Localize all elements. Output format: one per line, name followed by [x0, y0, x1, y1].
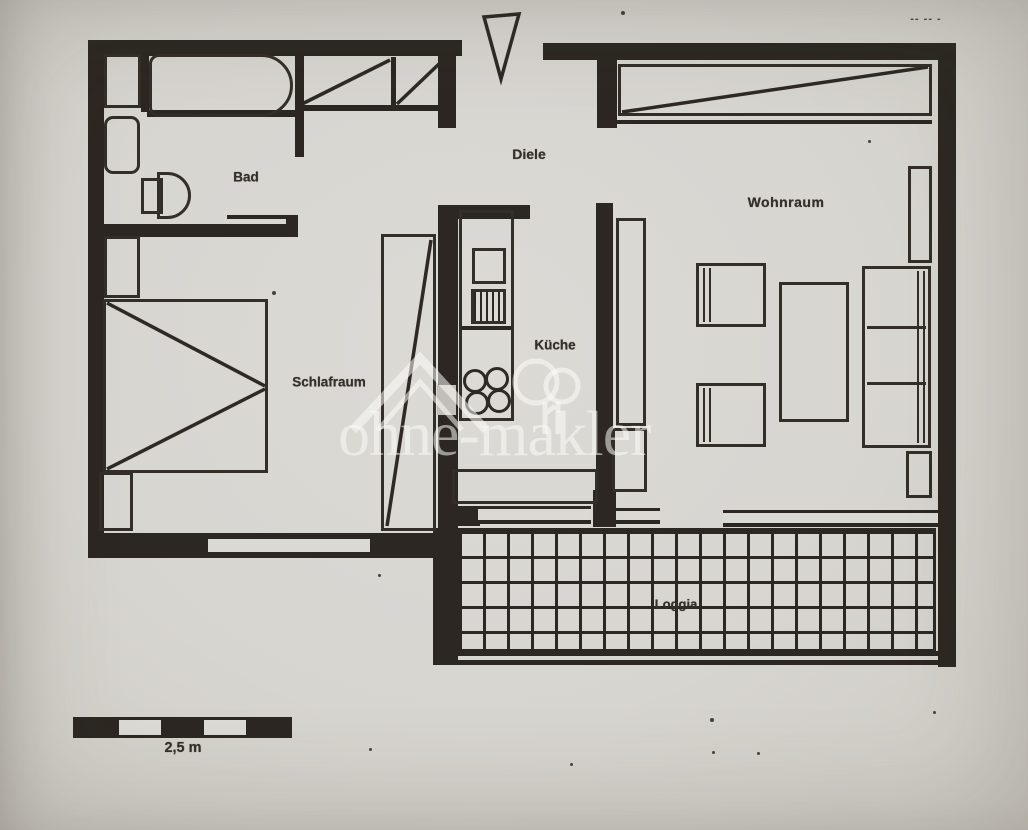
scale-label: 2,5 m — [164, 740, 201, 756]
room-label-diele: Diele — [512, 146, 545, 162]
scan-speck — [272, 291, 276, 295]
loggia-tile-grid — [456, 528, 936, 652]
armchair-2 — [696, 383, 766, 447]
cabinet-upper — [616, 218, 646, 426]
armchair-1 — [696, 263, 766, 327]
room-label-schlafraum: Schlafraum — [292, 375, 366, 390]
sofa-backrest-line — [917, 271, 919, 443]
armchair-armrest-line — [709, 388, 711, 442]
bedroom-wardrobe — [381, 234, 436, 531]
armchair-armrest-line — [703, 388, 705, 442]
scale-segment — [204, 720, 247, 735]
window-mid-loggia — [616, 508, 660, 524]
scan-speck — [369, 748, 372, 751]
scale-segment — [76, 720, 119, 735]
coffee-table — [779, 282, 849, 422]
toilet-bowl — [157, 172, 191, 219]
scan-speck — [757, 752, 760, 755]
scale-segment — [119, 720, 162, 735]
scan-speck — [378, 574, 381, 577]
window-living-loggia — [723, 510, 938, 527]
window-bedroom — [208, 536, 370, 555]
kitchen-counter — [452, 469, 598, 504]
scan-speck — [710, 718, 714, 722]
wall-kitchen-right — [596, 203, 613, 493]
room-label-bad: Bad — [233, 170, 259, 185]
hall-wardrobe-diagonal — [302, 60, 390, 104]
kitchen-gray-patch — [437, 385, 456, 415]
armchair-armrest-line — [709, 268, 711, 322]
washbasin — [104, 116, 140, 174]
scan-speck — [868, 140, 871, 143]
scale-bar — [73, 717, 292, 738]
entrance-arrow-icon — [484, 14, 519, 79]
room-label-kueche: Küche — [534, 338, 575, 353]
scan-speck — [712, 751, 715, 754]
sofa-backrest-line — [923, 271, 925, 443]
floorplan-photo: Bad Diele Wohnraum Schlafraum Küche Logg… — [0, 0, 1028, 830]
wall-shelf — [908, 166, 932, 263]
scale-segment — [161, 720, 204, 735]
room-label-loggia: Loggia — [655, 597, 698, 612]
wall-hall-living-stub — [597, 60, 617, 128]
shower-tray — [104, 54, 141, 108]
wall-bath-right — [295, 40, 304, 157]
handwritten-marks: -- -- - — [910, 13, 941, 25]
bathtub — [149, 54, 293, 117]
living-wardrobe-baseline — [608, 120, 932, 124]
kitchen-drainer — [471, 289, 506, 324]
bath-door-leaf — [227, 215, 289, 219]
loggia-railing — [456, 651, 938, 665]
cabinet-lower — [612, 428, 647, 492]
armchair-armrest-line — [703, 268, 705, 322]
scan-speck — [621, 11, 625, 15]
wall-bath-divider — [141, 46, 149, 112]
hall-wardrobe-base — [300, 105, 443, 111]
wall-right — [938, 43, 956, 667]
scale-segment — [246, 720, 289, 735]
kitchen-sink — [472, 248, 506, 284]
scan-speck — [570, 763, 573, 766]
nightstand-bottom — [99, 472, 133, 531]
wall-top-right — [543, 43, 956, 60]
nightstand-top — [104, 236, 140, 298]
scan-speck — [933, 711, 936, 714]
wall-entry-stub — [438, 40, 456, 128]
bed — [103, 299, 268, 473]
living-wardrobe — [618, 64, 932, 116]
hall-wardrobe-diagonal — [397, 63, 440, 104]
wall-loggia-stub — [433, 528, 458, 665]
sofa — [862, 266, 931, 448]
side-table — [906, 451, 932, 498]
wall-under-kitchen-window — [456, 506, 480, 526]
room-label-wohnraum: Wohnraum — [748, 194, 825, 210]
hall-wardrobe-divider — [391, 57, 396, 111]
window-kitchen-loggia — [478, 506, 591, 524]
